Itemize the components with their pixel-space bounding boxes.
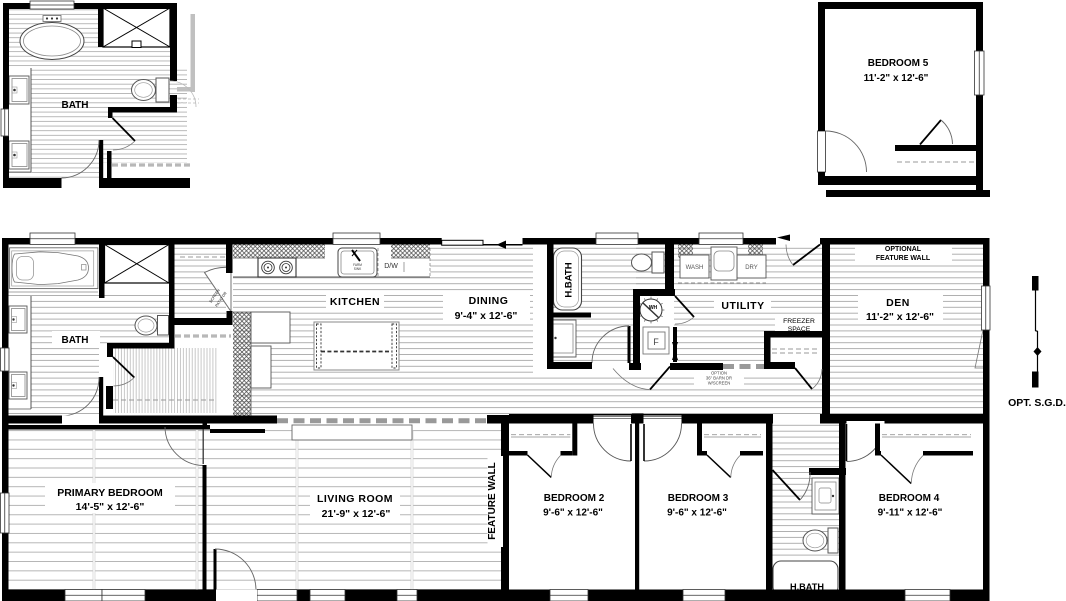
svg-text:SPACE: SPACE: [788, 326, 811, 333]
svg-text:BEDROOM 4: BEDROOM 4: [879, 493, 940, 504]
svg-text:H.BATH: H.BATH: [564, 262, 575, 297]
svg-text:BEDROOM 3: BEDROOM 3: [668, 493, 729, 504]
svg-text:OPT. S.G.D.: OPT. S.G.D.: [1008, 397, 1066, 409]
svg-text:21'-9" x 12'-6": 21'-9" x 12'-6": [322, 508, 391, 520]
svg-text:BATH: BATH: [61, 100, 88, 111]
svg-text:DRY: DRY: [745, 265, 758, 271]
svg-text:14'-5" x 12'-6": 14'-5" x 12'-6": [76, 501, 145, 513]
svg-text:9'-11" x 12'-6": 9'-11" x 12'-6": [878, 508, 943, 519]
svg-text:DEN: DEN: [886, 297, 910, 309]
svg-text:11'-2" x 12'-6": 11'-2" x 12'-6": [864, 73, 929, 84]
svg-text:FREEZER: FREEZER: [783, 318, 815, 325]
svg-text:WASH: WASH: [686, 265, 704, 271]
svg-text:DINING: DINING: [469, 295, 509, 307]
svg-text:W/SCREEN: W/SCREEN: [708, 381, 731, 386]
svg-text:9'-6" x 12'-6": 9'-6" x 12'-6": [543, 508, 603, 519]
svg-text:F: F: [653, 337, 659, 347]
svg-text:FEATURE WALL: FEATURE WALL: [876, 255, 931, 262]
svg-text:9'-6" x 12'-6": 9'-6" x 12'-6": [667, 508, 727, 519]
svg-text:BATH: BATH: [61, 335, 88, 346]
svg-text:UTILITY: UTILITY: [721, 300, 764, 312]
svg-text:PRIMARY BEDROOM: PRIMARY BEDROOM: [57, 487, 163, 499]
svg-text:FEATURE WALL: FEATURE WALL: [487, 462, 498, 540]
svg-text:SINK: SINK: [354, 267, 362, 271]
svg-text:OPTIONAL: OPTIONAL: [885, 246, 922, 253]
svg-text:BEDROOM 2: BEDROOM 2: [544, 493, 605, 504]
svg-text:D/W: D/W: [384, 263, 398, 270]
svg-text:11'-2" x 12'-6": 11'-2" x 12'-6": [866, 311, 934, 323]
svg-text:BEDROOM 5: BEDROOM 5: [868, 58, 929, 69]
svg-text:9'-4" x 12'-6": 9'-4" x 12'-6": [455, 310, 518, 322]
svg-text:KITCHEN: KITCHEN: [330, 296, 380, 308]
svg-text:LIVING ROOM: LIVING ROOM: [317, 493, 393, 505]
svg-text:WH: WH: [649, 305, 658, 311]
